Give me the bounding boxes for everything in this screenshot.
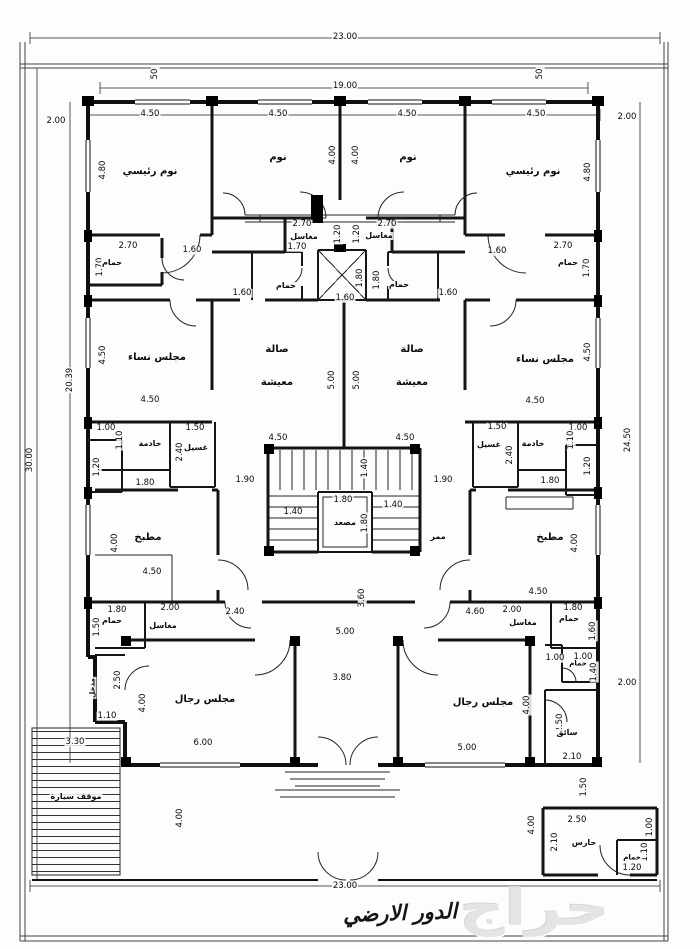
room-label: مجلس رجال xyxy=(174,695,237,705)
room-label: حارس xyxy=(571,839,597,847)
room-label: مدخل xyxy=(90,677,97,699)
room-label: ممر xyxy=(429,533,446,541)
room-label: صالة xyxy=(399,345,424,355)
room-label: خادمة xyxy=(521,440,546,448)
room-label: معيشة xyxy=(395,378,429,388)
room-label: نوم رئيسي xyxy=(122,167,179,177)
room-label: مغاسل xyxy=(289,233,318,241)
room-label: نوم xyxy=(268,153,287,163)
room-label: نوم رئيسي xyxy=(505,167,562,177)
room-label: مجلس نساء xyxy=(127,353,187,363)
blueprint-page: حراج 23.0019.0050502.002.004.504.504.504… xyxy=(0,0,700,949)
room-label: موقف سيارة xyxy=(50,793,103,801)
room-label: مطبخ xyxy=(535,533,564,543)
room-label: مطبخ xyxy=(133,533,162,543)
room-label: حمام xyxy=(558,615,580,623)
room-label: نوم xyxy=(398,153,417,163)
room-label: مغاسل xyxy=(148,622,177,630)
room-label: مصعد xyxy=(333,519,357,527)
room-label: حمام xyxy=(568,661,588,668)
room-label: حمام xyxy=(388,281,410,289)
room-label: حمام xyxy=(101,259,123,267)
room-label: صالة xyxy=(264,345,289,355)
room-labels-layer: نوم رئيسينومنومنوم رئيسيمغاسلمغاسلحمامحم… xyxy=(0,0,700,949)
room-label: مجلس نساء xyxy=(515,355,575,365)
room-label: مغاسل xyxy=(508,619,537,627)
room-label: مغاسل xyxy=(364,232,393,240)
room-label: غسيل xyxy=(476,441,502,449)
room-label: حمام xyxy=(275,282,297,290)
room-label: حمام xyxy=(622,855,642,862)
room-label: معيشة xyxy=(260,378,294,388)
room-label: حمام xyxy=(557,259,579,267)
room-label: سائق xyxy=(555,729,578,737)
room-label: غسيل xyxy=(183,444,209,452)
room-label: خادمة xyxy=(138,440,163,448)
room-label: مجلس رجال xyxy=(452,698,515,708)
room-label: حمام xyxy=(101,617,123,625)
